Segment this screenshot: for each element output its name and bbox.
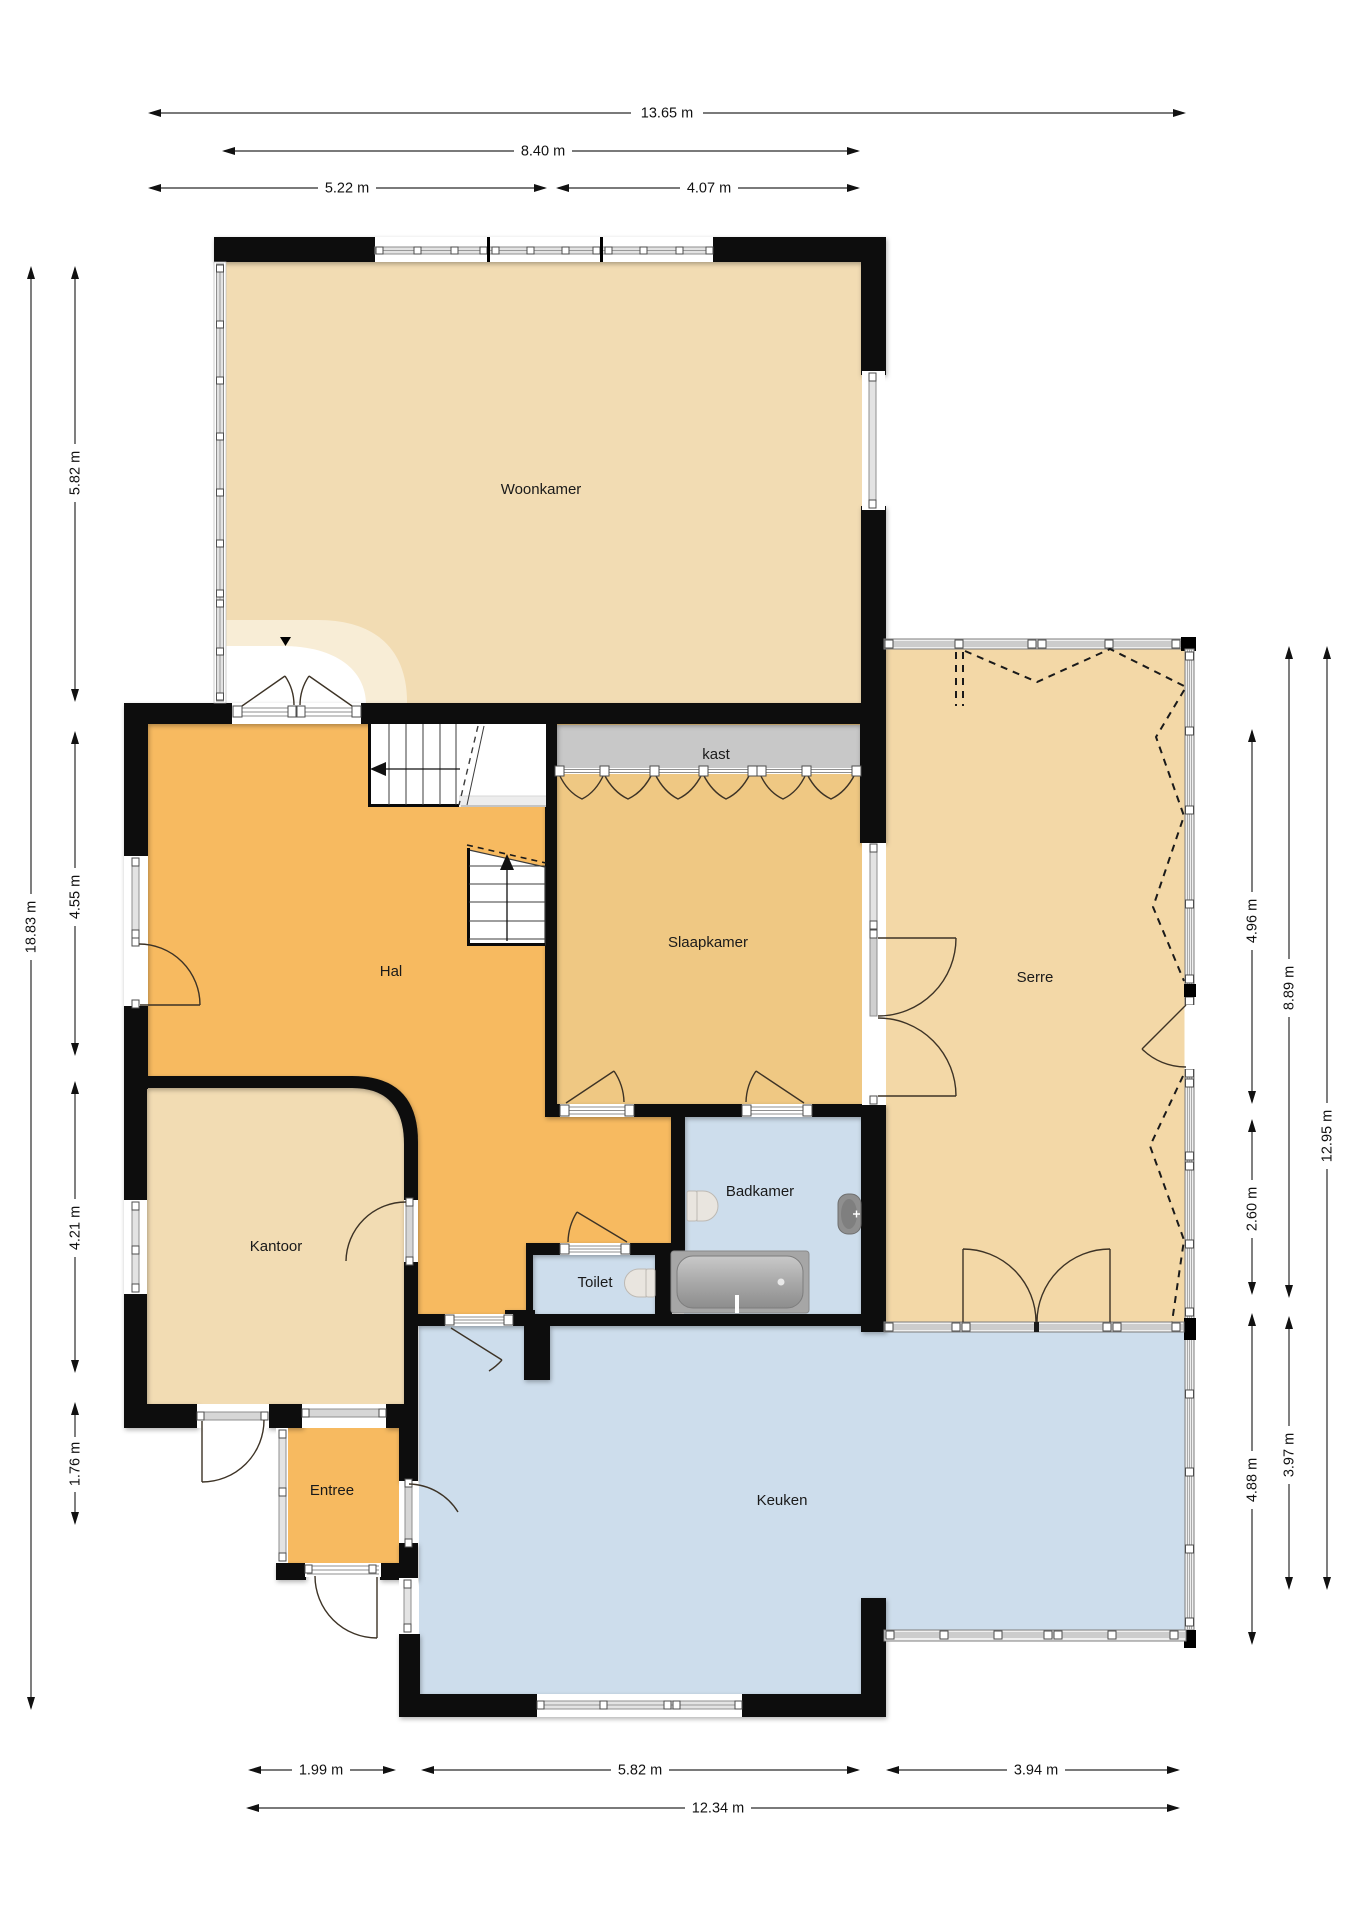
svg-text:5.82 m: 5.82 m — [68, 451, 84, 495]
svg-text:12.34 m: 12.34 m — [692, 1801, 744, 1817]
svg-text:18.83 m: 18.83 m — [24, 901, 40, 953]
svg-text:Slaapkamer: Slaapkamer — [668, 934, 748, 951]
svg-text:Hal: Hal — [380, 963, 403, 980]
svg-text:Keuken: Keuken — [757, 1492, 808, 1509]
svg-text:12.95 m: 12.95 m — [1320, 1110, 1336, 1162]
svg-text:8.40 m: 8.40 m — [521, 144, 565, 160]
svg-text:13.65 m: 13.65 m — [641, 106, 693, 122]
svg-text:Entree: Entree — [310, 1482, 354, 1499]
svg-text:4.07 m: 4.07 m — [687, 181, 731, 197]
svg-text:Badkamer: Badkamer — [726, 1183, 794, 1200]
svg-text:Serre: Serre — [1017, 969, 1054, 986]
svg-text:Toilet: Toilet — [577, 1274, 613, 1291]
svg-text:3.97 m: 3.97 m — [1282, 1433, 1298, 1477]
svg-text:2.60 m: 2.60 m — [1245, 1187, 1261, 1231]
svg-text:1.76 m: 1.76 m — [68, 1442, 84, 1486]
svg-text:1.99 m: 1.99 m — [299, 1763, 343, 1779]
svg-text:kast: kast — [702, 746, 730, 763]
svg-text:5.22 m: 5.22 m — [325, 181, 369, 197]
svg-text:Woonkamer: Woonkamer — [501, 481, 582, 498]
svg-text:4.55 m: 4.55 m — [68, 875, 84, 919]
svg-text:3.94 m: 3.94 m — [1014, 1763, 1058, 1779]
svg-text:Kantoor: Kantoor — [250, 1238, 303, 1255]
svg-text:5.82 m: 5.82 m — [618, 1763, 662, 1779]
svg-text:4.96 m: 4.96 m — [1245, 899, 1261, 943]
svg-text:8.89 m: 8.89 m — [1282, 966, 1298, 1010]
svg-text:4.21 m: 4.21 m — [68, 1206, 84, 1250]
svg-text:4.88 m: 4.88 m — [1245, 1458, 1261, 1502]
